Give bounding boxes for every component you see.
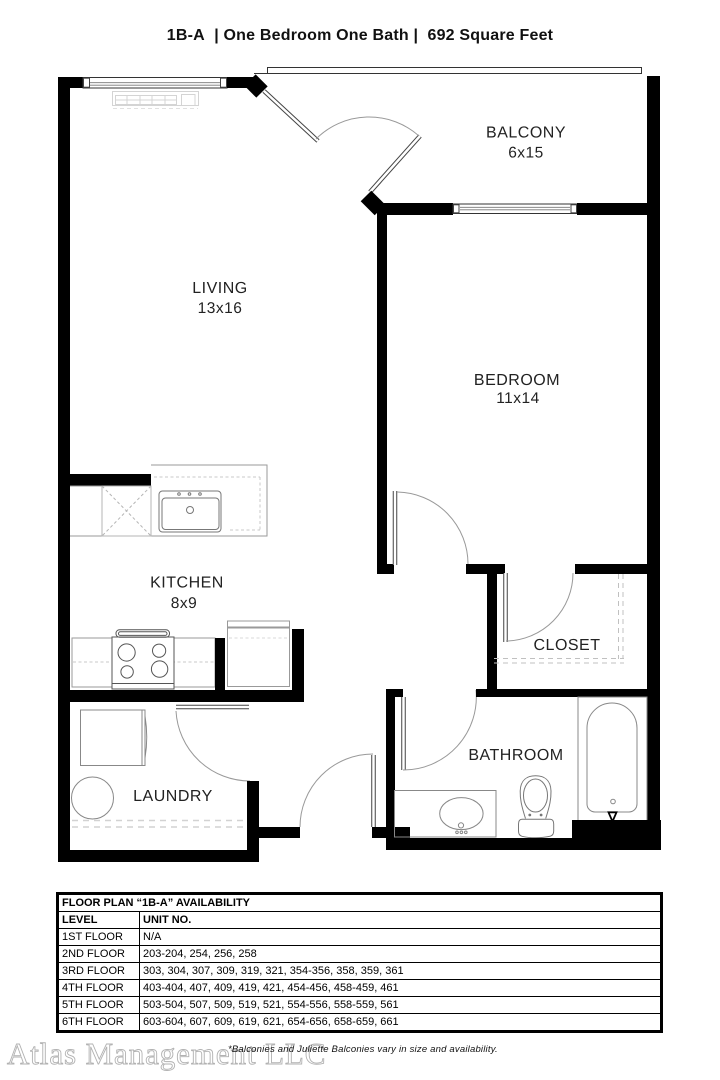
svg-text:CLOSET: CLOSET <box>533 637 600 654</box>
svg-text:KITCHEN: KITCHEN <box>150 575 224 592</box>
svg-text:LIVING: LIVING <box>192 280 247 297</box>
svg-text:BATHROOM: BATHROOM <box>468 747 563 764</box>
svg-text:BALCONY: BALCONY <box>486 125 566 142</box>
svg-text:LAUNDRY: LAUNDRY <box>133 788 213 805</box>
svg-text:11x14: 11x14 <box>496 390 540 407</box>
svg-text:8x9: 8x9 <box>171 595 198 612</box>
svg-text:BEDROOM: BEDROOM <box>474 372 560 389</box>
svg-text:13x16: 13x16 <box>198 300 243 317</box>
svg-text:6x15: 6x15 <box>508 145 544 162</box>
